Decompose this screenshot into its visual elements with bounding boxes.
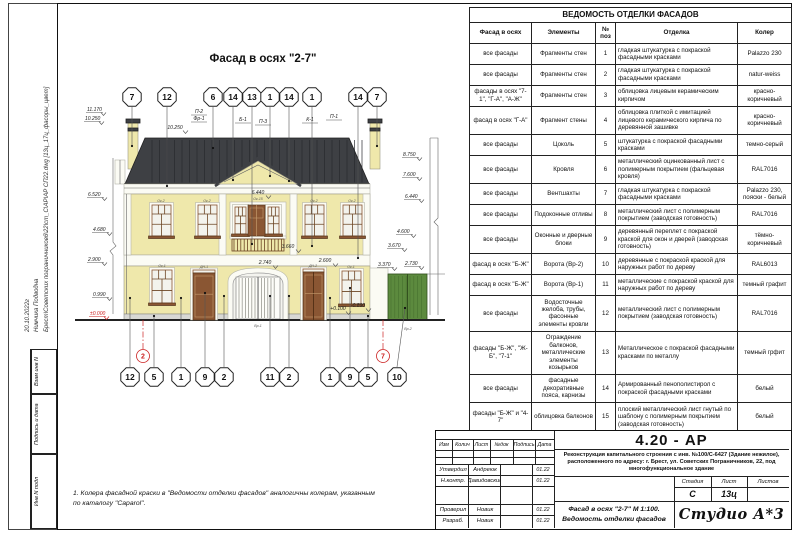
- title-block: Изм Колич Лист №док Подпись Дата Утверди…: [435, 430, 792, 530]
- callout-number: 5: [366, 372, 371, 382]
- callout-number: 1: [179, 372, 184, 382]
- leader-dot: [180, 297, 182, 299]
- table-cell: 8: [596, 205, 616, 226]
- table-row: все фасадыПодоконные отливы8металлически…: [470, 205, 792, 226]
- table-cell: деревянные с покраской краской для наруж…: [616, 254, 738, 275]
- elevation-mark: 6.520: [88, 192, 101, 198]
- sig-name: Новик: [468, 515, 500, 526]
- window-sill: [265, 234, 283, 237]
- elevation-mark: 2.900: [87, 257, 101, 263]
- leader-dot: [329, 297, 331, 299]
- callout-number: 1: [268, 92, 273, 102]
- leader-label: П-3: [259, 119, 267, 125]
- table-row: фасады в осях "7-1", "Г-А", "А-Ж"Фрагмен…: [470, 85, 792, 106]
- callout-number: 6: [211, 92, 216, 102]
- table-cell: Фрагмент стены: [532, 106, 596, 134]
- table-cell: Оконные и дверные блоки: [532, 225, 596, 253]
- dim-tick: [183, 131, 188, 134]
- callout-number: 9: [203, 372, 208, 382]
- table-row: все фасадыФрагменты стен1гладкая штукату…: [470, 44, 792, 65]
- leader-dot: [288, 180, 290, 182]
- callout-number: 14: [228, 92, 238, 102]
- table-cell: 7: [596, 184, 616, 205]
- table-cell: 11: [596, 275, 616, 296]
- table-cell: гладкая штукатурка с покраской фасадными…: [616, 64, 738, 85]
- sig-role: Н.контр.: [436, 475, 468, 486]
- table-cell: RAL7016: [738, 155, 792, 183]
- table-cell: все фасады: [470, 374, 532, 402]
- callout-number: 11: [266, 372, 275, 382]
- table-cell: фасад в осях "Г-А": [470, 106, 532, 134]
- col-header: № поз: [596, 23, 616, 44]
- elevation-mark: 3.670: [388, 243, 401, 249]
- inline-dim: -0.890: [351, 303, 365, 309]
- balcony-balusters: [234, 239, 282, 251]
- elevation-mark: 10.250: [85, 116, 101, 122]
- leader-dot: [349, 287, 351, 289]
- table-cell: Подоконные отливы: [532, 205, 596, 226]
- table-cell: Фрагменты стен: [532, 44, 596, 65]
- element-tag: Вр-2: [404, 327, 411, 331]
- rev-header: Лист: [473, 439, 490, 450]
- table-row: все фасадыОконные и дверные блоки9деревя…: [470, 225, 792, 253]
- table-row: фасад в осях "Б-Ж"Ворота (Вр-1)11металли…: [470, 275, 792, 296]
- elevation-tick: [417, 178, 422, 181]
- table-cell: тёмно-коричневый: [738, 225, 792, 253]
- table-cell: Кровля: [532, 155, 596, 183]
- file-date: 20.10.2022г: [24, 60, 33, 332]
- callout-number: 9: [348, 372, 353, 382]
- callout-number: 1: [310, 92, 315, 102]
- callout-number: 2: [222, 372, 227, 382]
- elevation-tick: [101, 113, 106, 116]
- drawing-title: Фасад в осях "2-7": [210, 53, 317, 65]
- leader-dot: [288, 295, 290, 297]
- elevation-tick: [107, 298, 112, 301]
- elevation-tick: [392, 268, 397, 271]
- leader-dot: [166, 185, 168, 187]
- finish-table: ВЕДОМОСТЬ ОТДЕЛКИ ФАСАДОВ Фасад в осях Э…: [469, 7, 792, 500]
- table-cell: фасады "Б-Ж" и "4-7": [470, 403, 532, 431]
- table-cell: белый: [738, 374, 792, 402]
- leader-dot: [269, 295, 271, 297]
- leader-dot: [404, 307, 406, 309]
- table-cell: металлический лист с полимерным покрытие…: [616, 205, 738, 226]
- leader-dot: [269, 175, 271, 177]
- leader-dot: [204, 292, 206, 294]
- col-header: Элементы: [532, 23, 596, 44]
- table-cell: natur-weiss: [738, 64, 792, 85]
- cornice-band: [124, 184, 370, 194]
- table-cell: Фрагменты стен: [532, 64, 596, 85]
- leader-dot: [311, 245, 313, 247]
- inline-dim: 10.250: [167, 125, 183, 131]
- table-cell: все фасады: [470, 155, 532, 183]
- leader-dot: [367, 315, 369, 317]
- element-tag: Ок-1: [158, 264, 166, 268]
- table-cell: красно-коричневый: [738, 106, 792, 134]
- table-row: все фасадыФрагменты стен2гладкая штукату…: [470, 64, 792, 85]
- rev-header: №док: [490, 439, 513, 450]
- table-row: фасад в осях "Г-А"Фрагмент стены4облицов…: [470, 106, 792, 134]
- finish-table-title: ВЕДОМОСТЬ ОТДЕЛКИ ФАСАДОВ: [470, 8, 792, 23]
- door: [193, 273, 215, 320]
- table-row: все фасадыЦоколь5штукатурка с покраской …: [470, 135, 792, 156]
- table-cell: 5: [596, 135, 616, 156]
- table-cell: Армированный пенополистирол с покраской …: [616, 374, 738, 402]
- table-row: все фасадыКровля6металлический оцинкован…: [470, 155, 792, 183]
- elevation-mark: 6.440: [405, 194, 418, 200]
- elevation-mark: 7.600: [403, 172, 416, 178]
- sheet-label: Лист: [711, 476, 747, 487]
- table-cell: фасад в осях "Б-Ж": [470, 275, 532, 296]
- table-row: все фасадыВодосточные желоба, трубы, фас…: [470, 296, 792, 332]
- inline-dim: 3.660: [282, 244, 295, 250]
- sheets-value: [747, 487, 789, 501]
- element-tag: ДН-1: [199, 265, 208, 269]
- finish-table-header-row: Фасад в осях Элементы № поз Отделка Коле…: [470, 23, 792, 44]
- element-tag: Ок-1: [347, 265, 355, 269]
- table-cell: темно-серый: [738, 135, 792, 156]
- callout-number: 12: [125, 372, 135, 382]
- leader-dot: [251, 243, 253, 245]
- leader-dot: [212, 147, 214, 149]
- elevation-mark: 11.170: [87, 107, 102, 113]
- leader-dot: [376, 145, 378, 147]
- table-cell: темный графит: [738, 275, 792, 296]
- sig-name: Давидовский: [468, 475, 500, 486]
- table-cell: штукатурка с покраской фасадными краскам…: [616, 135, 738, 156]
- inline-dim: 2.600: [318, 258, 332, 264]
- sig-name: Новик: [468, 504, 500, 515]
- callout-number: 13: [247, 92, 257, 102]
- col-header: Отделка: [616, 23, 738, 44]
- stage-value: С: [674, 487, 711, 501]
- elevation-tick: [102, 198, 107, 201]
- sig-role: Разраб.: [436, 515, 468, 526]
- table-cell: облицовка лицевым керамическим кирпичом: [616, 85, 738, 106]
- leader-dot: [153, 315, 155, 317]
- table-cell: деревянный переплет с покраской краской …: [616, 225, 738, 253]
- elevation-mark: 0.990: [93, 292, 106, 298]
- studio-logo: Студио А*3: [674, 501, 789, 528]
- window-sill: [302, 236, 328, 239]
- element-tag: Ок-2: [310, 199, 318, 203]
- table-cell: RAL6013: [738, 254, 792, 275]
- table-cell: все фасады: [470, 135, 532, 156]
- stamp-box-label: Подпись и дата: [31, 395, 42, 453]
- callout-number: 7: [375, 92, 380, 102]
- facade-elevation-drawing: Фасад в осях "2-7": [60, 18, 460, 438]
- sheets-label: Листов: [747, 476, 789, 487]
- elevation-tick: [402, 249, 407, 252]
- stage-label: Стадия: [674, 476, 711, 487]
- element-tag: Ок-15: [253, 197, 262, 201]
- col-header: Колер: [738, 23, 792, 44]
- leader-label: Б-1: [239, 117, 247, 123]
- table-cell: 2: [596, 64, 616, 85]
- stamp-box-vzam: Взам инв N: [30, 349, 57, 394]
- table-cell: металлический оцинкованный лист с полиме…: [616, 155, 738, 183]
- callout-number: 1: [328, 372, 333, 382]
- elevation-mark: 8.750: [403, 152, 416, 158]
- leader-dot: [232, 179, 234, 181]
- rev-header: Изм: [436, 439, 452, 450]
- inline-dim: 6.440: [252, 190, 265, 196]
- table-cell: 12: [596, 296, 616, 332]
- table-cell: гладкая штукатурка с покраской фасадными…: [616, 44, 738, 65]
- element-tag: ДН-2: [308, 264, 317, 268]
- elevation-tick: [107, 233, 112, 236]
- callout-number: 7: [130, 92, 135, 102]
- leader-dot: [357, 257, 359, 259]
- finish-schedule: ВЕДОМОСТЬ ОТДЕЛКИ ФАСАДОВ Фасад в осях Э…: [469, 7, 791, 500]
- window-sill: [149, 303, 176, 306]
- window-sill: [340, 236, 366, 239]
- chimney-right: [368, 119, 382, 169]
- pilaster: [124, 194, 131, 255]
- stamp-box-label: Инв N подл: [31, 455, 42, 528]
- table-cell: Металлическое с покраской фасадными крас…: [616, 331, 738, 374]
- table-cell: Ограждение балконов, металлические элеме…: [532, 331, 596, 374]
- rev-header: Колич: [452, 439, 473, 450]
- table-cell: облицовка балконов: [532, 403, 596, 431]
- table-cell: Фрагменты стен: [532, 85, 596, 106]
- window-sill: [195, 236, 221, 239]
- leader-label: К-1: [306, 117, 314, 123]
- sig-date: 01.22: [532, 464, 554, 475]
- table-cell: красно-коричневый: [738, 85, 792, 106]
- table-cell: Ворота (Вр-1): [532, 275, 596, 296]
- leader-dot: [223, 295, 225, 297]
- stamp-box-label: Взам инв N: [31, 350, 42, 393]
- table-cell: Palazzo 230, пояски - белый: [738, 184, 792, 205]
- table-cell: 3: [596, 85, 616, 106]
- elevation-tick: [99, 122, 104, 125]
- element-tag: Ок-2: [203, 199, 211, 203]
- table-row: фасад в осях "Б-Ж"Ворота (Вр-2)10деревян…: [470, 254, 792, 275]
- project-description: Реконструкция капитального строения с ин…: [554, 449, 789, 476]
- element-tag: Ок-2: [348, 199, 356, 203]
- elevation-tick: [411, 235, 416, 238]
- element-tag: Вр-1: [254, 324, 261, 328]
- drawing-note: 1. Колера фасадной краски в "Ведомости о…: [73, 489, 421, 509]
- table-row: все фасадыфасадные декоративные пояса, к…: [470, 374, 792, 402]
- window-sill: [149, 236, 175, 239]
- table-cell: все фасады: [470, 225, 532, 253]
- table-cell: гладкая штукатурка с покраской фасадными…: [616, 184, 738, 205]
- file-info-vertical: 20.10.2022г Нимчика Подводна Брест\Совет…: [24, 60, 52, 332]
- table-cell: все фасады: [470, 64, 532, 85]
- elevation-tick: [419, 200, 424, 203]
- leader-label: П-2: [195, 109, 203, 115]
- sig-name: Андреюк: [468, 464, 500, 475]
- elevation-tick: [419, 267, 424, 270]
- axis-number: 2: [141, 354, 145, 361]
- break-line-right: [430, 138, 438, 315]
- file-author: Нимчика Подводна: [33, 60, 42, 332]
- axis-number: 7: [381, 354, 385, 361]
- table-cell: облицовка плиткой с имитацией лицевого к…: [616, 106, 738, 134]
- table-row: все фасадыВентшахты7гладкая штукатурка с…: [470, 184, 792, 205]
- callout-number: 12: [162, 92, 172, 102]
- table-row: фасады "Б-Ж", "Ж-Б", "7-1"Ограждение бал…: [470, 331, 792, 374]
- callout-number: 14: [284, 92, 294, 102]
- table-cell: фасады в осях "7-1", "Г-А", "А-Ж": [470, 85, 532, 106]
- table-cell: Ворота (Вр-2): [532, 254, 596, 275]
- table-cell: белый: [738, 403, 792, 431]
- window-sill: [232, 234, 250, 237]
- table-cell: все фасады: [470, 205, 532, 226]
- table-cell: RAL7016: [738, 205, 792, 226]
- table-cell: все фасады: [470, 44, 532, 65]
- sheet-value: 13ц: [711, 487, 747, 501]
- table-cell: Palazzo 230: [738, 44, 792, 65]
- stamp-box-podpis: Подпись и дата: [30, 394, 57, 454]
- elevation-mark: 3.370: [378, 262, 391, 268]
- element-tag: Ок-2: [157, 199, 165, 203]
- col-header: Фасад в осях: [470, 23, 532, 44]
- rev-header: Дата: [535, 439, 554, 450]
- sig-role: Проверил: [436, 504, 468, 515]
- table-cell: фасады "Б-Ж", "Ж-Б", "7-1": [470, 331, 532, 374]
- callout-number: 14: [353, 92, 363, 102]
- table-cell: 9: [596, 225, 616, 253]
- pilaster: [219, 194, 226, 255]
- table-cell: плоский металлический лист гнутый по шаб…: [616, 403, 738, 431]
- table-cell: все фасады: [470, 184, 532, 205]
- leader-label: Фр-1: [193, 116, 204, 122]
- table-cell: Водосточные желоба, трубы, фасонные элем…: [532, 296, 596, 332]
- file-path: Брест\Советских пограничников6\22\cm_C\А…: [43, 60, 52, 332]
- side-wall: [370, 268, 388, 320]
- table-cell: 13: [596, 331, 616, 374]
- table-cell: 6: [596, 155, 616, 183]
- table-cell: 14: [596, 374, 616, 402]
- drawing-caption: Фасад в осях "2-7" М 1:100. Ведомость от…: [554, 501, 674, 528]
- gate-vr1-bars: [236, 277, 280, 319]
- inline-dim: 2.740: [258, 260, 272, 266]
- door-transom: [303, 269, 324, 272]
- table-cell: металлический лист с полимерным покрытие…: [616, 296, 738, 332]
- elevation-mark: 4.600: [397, 229, 410, 235]
- table-cell: RAL7016: [738, 296, 792, 332]
- sig-date: 01.22: [532, 515, 554, 526]
- table-cell: Вентшахты: [532, 184, 596, 205]
- table-cell: металлические с покраской краской для на…: [616, 275, 738, 296]
- stamp-box-inv: Инв N подл: [30, 454, 57, 529]
- callout-number: 5: [152, 372, 157, 382]
- table-cell: 15: [596, 403, 616, 431]
- elevation-mark: 2.730: [404, 261, 418, 267]
- table-cell: 10: [596, 254, 616, 275]
- table-cell: фасад в осях "Б-Ж": [470, 254, 532, 275]
- door-transom: [193, 270, 215, 273]
- elevation-tick: [102, 263, 107, 266]
- drawing-sheet: 20.10.2022г Нимчика Подводна Брест\Совет…: [0, 0, 800, 533]
- leader-dot: [131, 145, 133, 147]
- leader-label: П-1: [330, 114, 338, 120]
- callout-number: 10: [392, 372, 402, 382]
- table-cell: фасадные декоративные пояса, карнизы: [532, 374, 596, 402]
- inline-dim: +0.100: [330, 306, 346, 312]
- sig-date: 01.22: [532, 475, 554, 486]
- rev-header: Подпись: [513, 439, 535, 450]
- table-cell: 4: [596, 106, 616, 134]
- elevation-mark: 4.680: [93, 227, 106, 233]
- elevation-tick: [417, 158, 422, 161]
- doc-number: 4.20 - АР: [554, 431, 789, 449]
- table-row: фасады "Б-Ж" и "4-7"облицовка балконов15…: [470, 403, 792, 431]
- callout-number: 2: [287, 372, 292, 382]
- table-cell: темный грфит: [738, 331, 792, 374]
- sig-role: Утвердил: [436, 464, 468, 475]
- elevation-mark: ±0.000: [90, 311, 105, 317]
- table-cell: все фасады: [470, 296, 532, 332]
- table-cell: Цоколь: [532, 135, 596, 156]
- leader-dot: [129, 297, 131, 299]
- table-cell: 1: [596, 44, 616, 65]
- sig-date: 01.22: [532, 504, 554, 515]
